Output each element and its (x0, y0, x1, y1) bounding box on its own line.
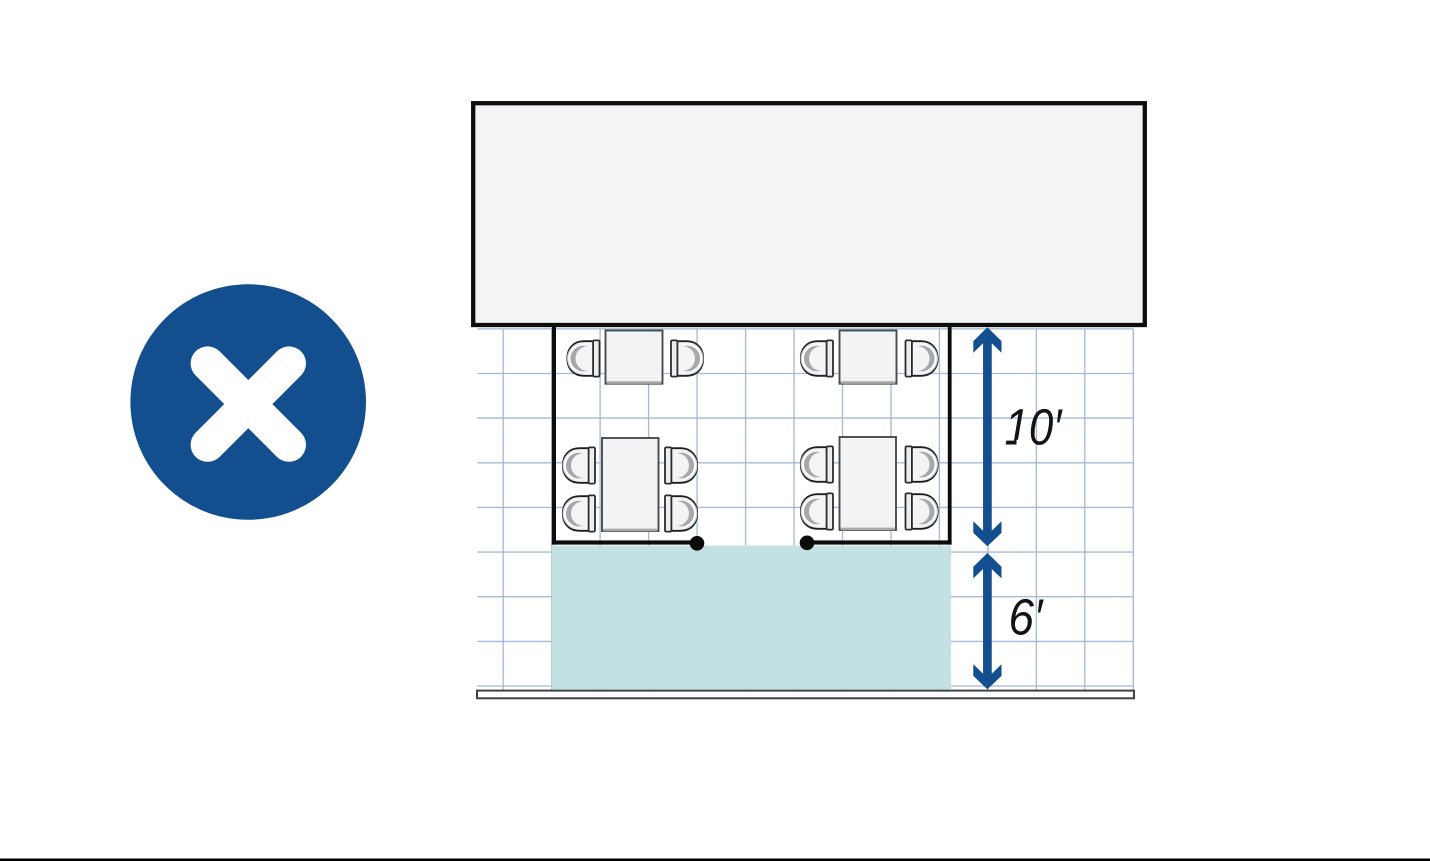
svg-text:10′: 10′ (1005, 399, 1063, 456)
svg-text:6′: 6′ (1009, 589, 1044, 646)
